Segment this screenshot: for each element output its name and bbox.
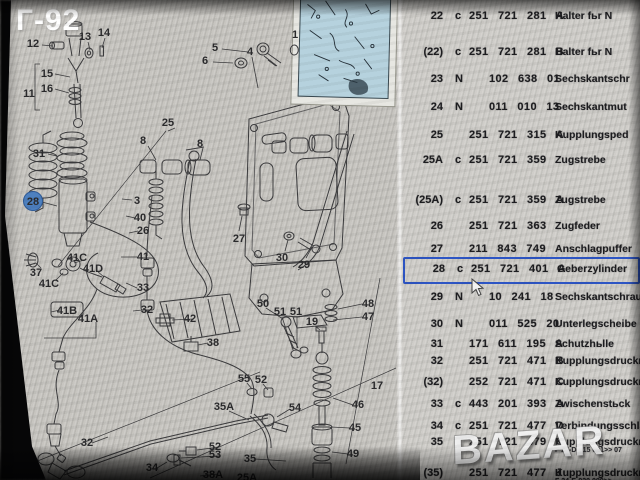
row-code: c <box>455 398 469 410</box>
part-callout-47[interactable]: 47 <box>362 311 374 323</box>
part-callout-38A[interactable]: 38A <box>203 469 223 480</box>
table-row[interactable]: 29N10 241 18Sechskantschraube <box>403 289 640 309</box>
photo-frame: 121314151611564125883128340263741C41D41C… <box>0 0 640 480</box>
part-callout-6[interactable]: 6 <box>202 55 208 67</box>
row-code: N <box>455 291 469 303</box>
part-callout-38[interactable]: 38 <box>207 337 219 349</box>
part-callout-51[interactable]: 51 <box>274 306 286 318</box>
part-callout-50[interactable]: 50 <box>257 298 269 310</box>
row-pos: 25A <box>403 154 443 166</box>
table-row[interactable]: (25A)c251 721 359AZugstrebe <box>403 192 640 212</box>
part-callout-8[interactable]: 8 <box>140 135 146 147</box>
part-callout-54[interactable]: 54 <box>289 402 302 414</box>
part-callout-53[interactable]: 53 <box>209 449 221 461</box>
row-part: 252 721 471C <box>469 376 564 388</box>
row-name: Halter fьr N <box>555 46 640 58</box>
part-callout-55[interactable]: 55 <box>238 373 250 385</box>
part-callout-17[interactable]: 17 <box>371 380 383 392</box>
part-callout-28[interactable]: 28 <box>27 196 39 208</box>
row-pos: 33 <box>403 398 443 410</box>
row-pos: (32) <box>403 376 443 388</box>
part-callout-30[interactable]: 30 <box>276 252 288 264</box>
row-part: 251 721 471B <box>469 355 564 367</box>
row-name: Zugfeder <box>555 220 640 232</box>
row-pos: 30 <box>403 318 443 330</box>
part-callout-14[interactable]: 14 <box>98 27 111 39</box>
part-callout-45[interactable]: 45 <box>349 422 361 434</box>
row-name: Kupplungsped <box>555 129 640 141</box>
row-pos: (22) <box>403 46 443 58</box>
part-callout-33[interactable]: 33 <box>137 282 149 294</box>
table-row[interactable]: 24N011 010 13Sechskantmut <box>403 99 640 119</box>
part-callout-13[interactable]: 13 <box>79 31 91 43</box>
part-callout-48[interactable]: 48 <box>362 298 374 310</box>
part-callout-31[interactable]: 31 <box>33 148 45 160</box>
row-pos: 31 <box>403 338 443 350</box>
row-part: 443 201 393A <box>469 398 564 410</box>
row-part: 10 241 18 <box>489 291 554 303</box>
part-callout-29[interactable]: 29 <box>298 259 310 271</box>
row-pos: 24 <box>403 101 443 113</box>
part-callout-40[interactable]: 40 <box>134 212 146 224</box>
part-callout-26[interactable]: 26 <box>137 225 149 237</box>
row-part: 251 721 401A <box>471 263 566 275</box>
row-pos: 32 <box>403 355 443 367</box>
table-row[interactable]: 25251 721 315AKupplungsped <box>403 127 640 147</box>
part-callout-27[interactable]: 27 <box>233 233 245 245</box>
row-code: c <box>455 194 469 206</box>
part-callout-49[interactable]: 49 <box>347 448 359 460</box>
row-code: c <box>455 46 469 58</box>
part-callout-4[interactable]: 4 <box>247 46 254 58</box>
part-callout-42[interactable]: 42 <box>184 313 196 325</box>
row-name: Kupplungsdruckrohr <box>555 376 640 388</box>
catalog-screen: 121314151611564125883128340263741C41D41C… <box>0 0 640 480</box>
part-callout-25A[interactable]: 25A <box>237 472 257 480</box>
part-callout-5[interactable]: 5 <box>212 42 218 54</box>
exploded-diagram: 121314151611564125883128340263741C41D41C… <box>0 0 400 480</box>
part-callout-34[interactable]: 34 <box>146 462 159 474</box>
part-callout-35[interactable]: 35 <box>244 453 256 465</box>
table-row[interactable]: 30N011 525 20Unterlegscheibe <box>403 316 640 336</box>
mouse-cursor <box>470 278 484 303</box>
part-callout-16[interactable]: 16 <box>41 83 53 95</box>
row-pos: 29 <box>403 291 443 303</box>
row-part: 251 721 359 <box>469 154 547 166</box>
row-name: Kupplungsdruckrohr <box>555 355 640 367</box>
part-callout-41A[interactable]: 41A <box>78 313 98 325</box>
table-row[interactable]: 28c251 721 401AGeberzylinder <box>403 257 640 284</box>
parts-table: 22c251 721 281AHalter fьr N(22)c251 721 … <box>403 0 640 480</box>
row-part: 011 525 20 <box>489 318 559 330</box>
overview-thumbnail[interactable] <box>289 0 398 107</box>
row-name: Anschlagpuffer <box>555 243 640 255</box>
table-row[interactable]: 32251 721 471BKupplungsdruckrohr <box>403 353 640 373</box>
part-callout-32[interactable]: 32 <box>141 304 153 316</box>
row-part: 251 721 359A <box>469 194 564 206</box>
table-row[interactable]: 33c443 201 393AZwischenstьck <box>403 396 640 416</box>
row-name: Zugstrebe <box>555 194 640 206</box>
part-callout-11[interactable]: 11 <box>23 88 35 100</box>
part-callout-32[interactable]: 32 <box>81 437 93 449</box>
row-part: 251 721 363 <box>469 220 547 232</box>
row-part: 251 721 281A <box>469 10 564 22</box>
row-part: 102 638 01 <box>489 73 560 85</box>
row-code: N <box>455 101 469 113</box>
row-name: Zwischenstьck <box>555 398 640 410</box>
table-row[interactable]: (22)c251 721 281BHalter fьr N <box>403 44 640 64</box>
part-callout-52[interactable]: 52 <box>255 374 267 386</box>
part-callout-19[interactable]: 19 <box>306 316 318 328</box>
row-code: c <box>457 263 471 275</box>
part-callout-35A[interactable]: 35A <box>214 401 234 413</box>
row-name: Halter fьr N <box>555 10 640 22</box>
row-name: Geberzylinder <box>557 263 640 275</box>
row-name: Sechskantmut <box>555 101 640 113</box>
row-part: 251 721 281B <box>469 46 564 58</box>
table-row[interactable]: 22c251 721 281AHalter fьr N <box>403 8 640 28</box>
part-callout-51[interactable]: 51 <box>290 306 302 318</box>
row-part: 011 010 13 <box>489 101 559 113</box>
row-code: c <box>455 154 469 166</box>
row-part: 211 843 749 <box>469 243 546 255</box>
row-pos: 26 <box>403 220 443 232</box>
row-name: Unterlegscheibe <box>555 318 640 330</box>
part-callout-8[interactable]: 8 <box>197 138 203 150</box>
row-code: c <box>455 10 469 22</box>
row-pos: 22 <box>403 10 443 22</box>
part-callout-41D[interactable]: 41D <box>83 263 103 275</box>
row-code: N <box>455 73 469 85</box>
table-row[interactable]: 23N102 638 01Sechskantschr <box>403 71 640 91</box>
table-row[interactable]: 25Ac251 721 359Zugstrebe <box>403 152 640 172</box>
row-pos: 28 <box>405 263 445 275</box>
table-row[interactable]: 26251 721 363Zugfeder <box>403 218 640 238</box>
row-pos: (25A) <box>403 194 443 206</box>
row-name: Sechskantschraube <box>555 291 640 303</box>
row-part: 171 611 195A <box>469 338 563 350</box>
row-part: 251 721 315A <box>469 129 564 141</box>
row-code: N <box>455 318 469 330</box>
page-code-label: Г-92 <box>16 4 80 38</box>
part-callout-12[interactable]: 12 <box>27 38 39 50</box>
part-callout-15[interactable]: 15 <box>41 68 53 80</box>
part-callout-41C[interactable]: 41C <box>39 278 59 290</box>
row-name: Schutzhьlle <box>555 338 640 350</box>
part-callout-41[interactable]: 41 <box>137 251 149 263</box>
part-callout-46[interactable]: 46 <box>352 399 364 411</box>
row-name: Zugstrebe <box>555 154 640 166</box>
row-name: Sechskantschr <box>555 73 640 85</box>
part-callout-3[interactable]: 3 <box>134 195 140 207</box>
diagram-pane: 121314151611564125883128340263741C41D41C… <box>0 0 400 480</box>
row-pos: 23 <box>403 73 443 85</box>
part-callout-41B[interactable]: 41B <box>57 305 77 317</box>
part-callout-1[interactable]: 1 <box>292 29 298 41</box>
part-callout-25[interactable]: 25 <box>162 117 174 129</box>
row-pos: 25 <box>403 129 443 141</box>
row-pos: 27 <box>403 243 443 255</box>
table-row[interactable]: (32)252 721 471CKupplungsdruckrohr <box>403 374 640 394</box>
